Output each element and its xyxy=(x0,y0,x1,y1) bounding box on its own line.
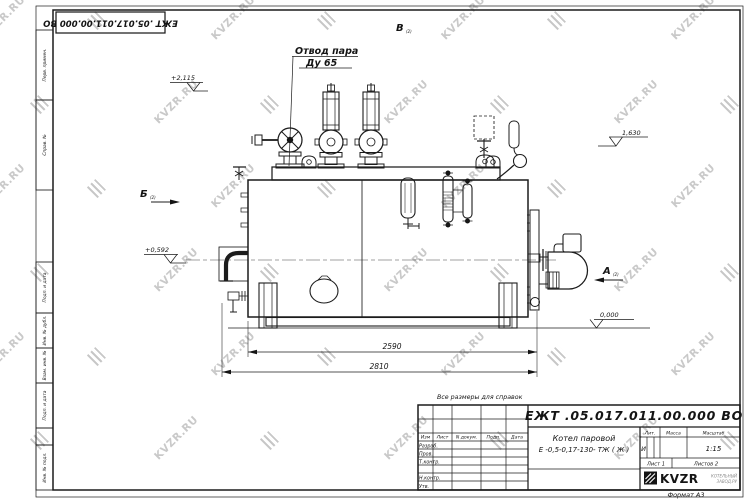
tb-sheets: Листов 2 xyxy=(693,462,718,468)
tb-row-utv: Утв. xyxy=(419,484,429,490)
view-b-arrow xyxy=(170,200,180,205)
level-ground: 0,000 xyxy=(600,311,619,319)
margin-label-inv-podl: Инв. № подл. xyxy=(42,452,48,482)
safety-valve-1 xyxy=(315,83,347,168)
tb-header-data: Дата xyxy=(510,435,523,441)
tb-header-podp: Подп. xyxy=(487,435,501,441)
view-b-label: Б xyxy=(140,189,148,200)
tb-row-razrab: Разраб. xyxy=(419,444,438,450)
reference-note: Все размеры для справок xyxy=(437,394,523,401)
steam-outlet-valve xyxy=(252,128,304,168)
tb-scale-header: Масштаб xyxy=(703,431,725,437)
tb-lit-header: Лит. xyxy=(644,431,656,437)
margin-columns: Перв. примен. Справ. № Подп. и дата Инв.… xyxy=(36,30,53,490)
feedwater-elbow xyxy=(219,247,248,281)
view-v-sheet-ref: (2) xyxy=(406,29,412,34)
tb-row-prov: Пров. xyxy=(419,452,433,458)
water-gauge-1 xyxy=(401,178,419,229)
tb-row-tkontr: Т.контр. xyxy=(419,460,440,466)
skid-rail xyxy=(266,318,510,327)
tb-row-nkontr: Н.контр. xyxy=(419,476,440,482)
sight-glass-knob xyxy=(531,298,540,307)
view-a-arrow xyxy=(594,278,604,283)
boiler-drawing: Перв. примен. Справ. № Подп. и дата Инв.… xyxy=(0,0,750,500)
tb-header-list: Лист xyxy=(436,435,449,441)
pressure-gauge-siphon xyxy=(497,121,527,179)
boiler-supports xyxy=(259,283,517,328)
kvzr-logo-text: KVZR xyxy=(660,472,699,486)
drain-fitting xyxy=(228,291,248,312)
manhole xyxy=(310,276,338,303)
view-v-label: В xyxy=(396,23,404,34)
margin-label-vzam-inv: Взам. инв. № xyxy=(42,350,48,380)
drawing-sheet: KVZR.RUKVZR.RUKVZR.RUKVZR.RUKVZR.RUKVZR.… xyxy=(0,0,750,500)
view-b-sheet-ref: (2) xyxy=(150,195,156,200)
tb-header-doc: N докум. xyxy=(456,435,477,441)
tb-doc-number: ЕЖТ .05.017.011.00.000 ВО xyxy=(525,408,743,423)
dim-overall: 2810 xyxy=(369,362,388,371)
top-stamp: ЕЖТ .05.017.011.00.000 ВО xyxy=(43,12,178,33)
margin-label-inv-dubl: Инв. № дубл. xyxy=(42,315,48,345)
tb-header-izm: Изм xyxy=(421,435,431,441)
level-axis: +0,592 xyxy=(145,246,169,254)
dimensions: 2590 2810 xyxy=(222,303,537,377)
safety-valve-2 xyxy=(355,83,387,168)
tb-scale-value: 1:15 xyxy=(706,445,722,453)
dim-supports: 2590 xyxy=(382,342,401,351)
title-block: Изм Лист N докум. Подп. Дата Разраб. Про… xyxy=(418,405,743,499)
water-gauge-2 xyxy=(443,171,473,228)
view-a-label: А xyxy=(602,266,611,277)
callout-line1: Отвод пара xyxy=(295,46,358,57)
top-stamp-doc-number: ЕЖТ .05.017.011.00.000 ВО xyxy=(43,18,178,28)
drawing-frame xyxy=(36,6,743,497)
kvzr-logo-sub1: КОТЕЛЬНЫЙ xyxy=(711,474,737,479)
margin-label-perv-primen: Перв. примен. xyxy=(42,49,48,82)
callout-line2: Ду 65 xyxy=(305,58,338,69)
level-marks: +2,115 1,630 +0,592 0,000 xyxy=(144,74,648,328)
level-steam: 1,630 xyxy=(622,129,641,137)
format-label: Формат А3 xyxy=(667,491,704,499)
shell-top-valve xyxy=(233,167,246,180)
level-top: +2,115 xyxy=(171,74,195,82)
kvzr-logo: KVZR КОТЕЛЬНЫЙ ЗАВОД.РУ xyxy=(644,472,738,487)
steam-dome-platform xyxy=(272,167,500,180)
tb-product-line1: Котел паровой xyxy=(553,434,616,443)
tb-lit-value: И xyxy=(641,445,646,453)
shell-left-stubs xyxy=(241,193,248,227)
margin-label-sprav-no: Справ. № xyxy=(42,134,48,156)
margin-label-podp-data-1: Подп. и дата xyxy=(42,272,48,302)
boiler-shell xyxy=(248,167,528,317)
tb-product-line2: Е -0,5-0,17-130- ТЖ ( Ж ) xyxy=(539,446,630,454)
view-a-sheet-ref: (2) xyxy=(613,272,619,277)
margin-label-podp-data-2: Подп. и дата xyxy=(42,390,48,420)
kvzr-logo-sub2: ЗАВОД.РУ xyxy=(717,479,738,484)
tb-sheet: Лист 1 xyxy=(646,462,665,468)
tb-mass-header: Масса xyxy=(666,431,681,437)
